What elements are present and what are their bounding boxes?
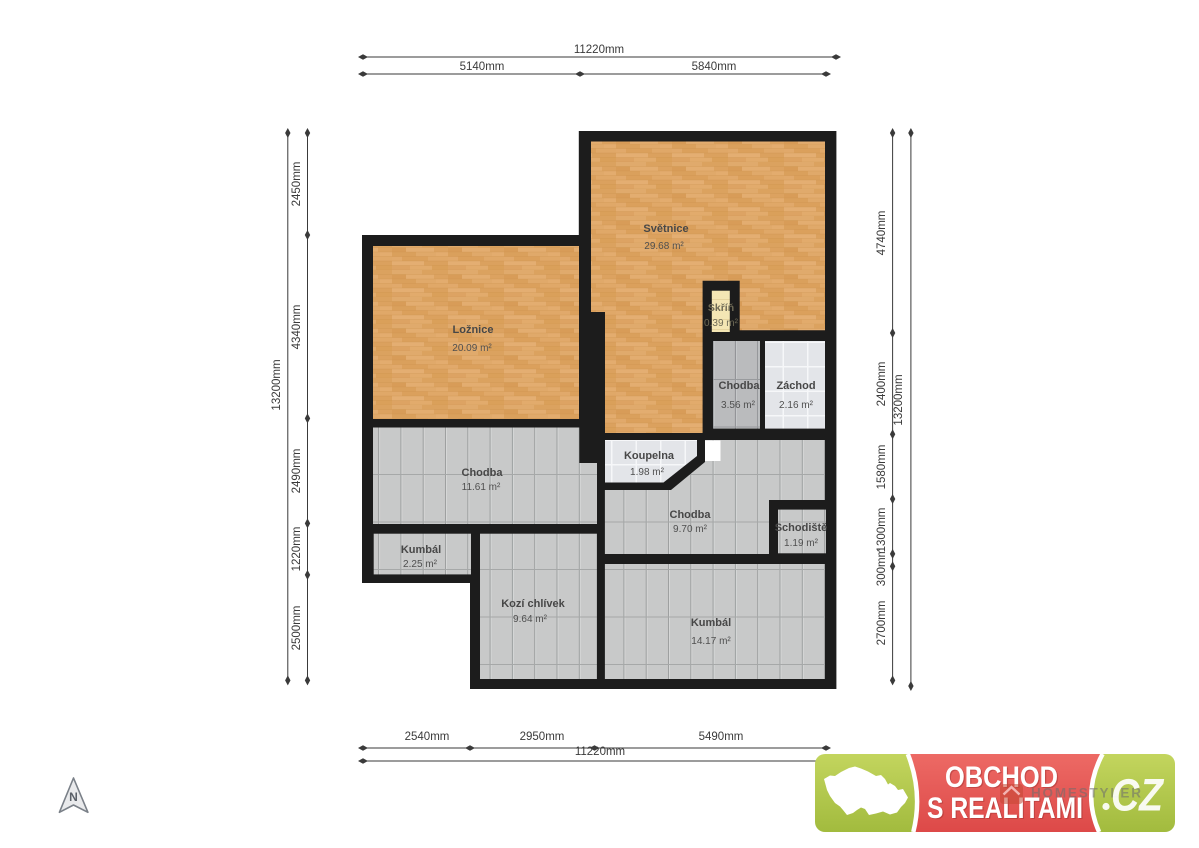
svg-text:Světnice: Světnice: [643, 223, 688, 235]
svg-text:2490mm: 2490mm: [291, 449, 303, 494]
svg-text:Kozí chlívek: Kozí chlívek: [501, 598, 565, 610]
svg-text:5840mm: 5840mm: [692, 61, 737, 73]
svg-text:Chodba: Chodba: [670, 509, 712, 521]
svg-text:29.68 m²: 29.68 m²: [644, 241, 684, 252]
svg-text:13200mm: 13200mm: [271, 359, 283, 410]
svg-text:Chodba: Chodba: [462, 467, 504, 479]
svg-text:2.25 m²: 2.25 m²: [403, 559, 438, 570]
svg-text:Koupelna: Koupelna: [624, 450, 675, 462]
svg-text:1.19 m²: 1.19 m²: [784, 538, 819, 549]
svg-text:2540mm: 2540mm: [405, 731, 450, 743]
svg-text:9.64 m²: 9.64 m²: [513, 614, 548, 625]
svg-text:1220mm: 1220mm: [291, 527, 303, 572]
svg-text:5140mm: 5140mm: [460, 61, 505, 73]
svg-text:300mm: 300mm: [876, 548, 888, 586]
svg-text:13200mm: 13200mm: [893, 374, 905, 425]
svg-text:5490mm: 5490mm: [699, 731, 744, 743]
svg-text:20.09 m²: 20.09 m²: [452, 343, 492, 354]
svg-text:Kumbál: Kumbál: [691, 617, 731, 629]
svg-text:1.98 m²: 1.98 m²: [630, 467, 665, 478]
svg-text:Kumbál: Kumbál: [401, 544, 441, 556]
svg-text:4340mm: 4340mm: [291, 305, 303, 350]
svg-text:CZ: CZ: [1111, 770, 1164, 821]
svg-text:Schodiště: Schodiště: [775, 522, 828, 534]
svg-text:1300mm: 1300mm: [876, 508, 888, 553]
svg-text:4740mm: 4740mm: [876, 211, 888, 256]
svg-text:0.39 m²: 0.39 m²: [704, 318, 739, 329]
svg-text:Ložnice: Ložnice: [453, 324, 494, 336]
svg-text:2.16 m²: 2.16 m²: [779, 400, 814, 411]
svg-text:1580mm: 1580mm: [876, 445, 888, 490]
svg-text:Chodba: Chodba: [719, 380, 761, 392]
svg-text:2500mm: 2500mm: [291, 606, 303, 651]
svg-text:Skříň: Skříň: [708, 302, 734, 314]
svg-text:9.70 m²: 9.70 m²: [673, 524, 708, 535]
svg-text:2700mm: 2700mm: [876, 601, 888, 646]
svg-text:N: N: [69, 790, 78, 804]
svg-text:Záchod: Záchod: [776, 380, 815, 392]
svg-text:2400mm: 2400mm: [876, 362, 888, 407]
svg-text:2950mm: 2950mm: [520, 731, 565, 743]
svg-text:3.56 m²: 3.56 m²: [721, 400, 756, 411]
svg-text:11220mm: 11220mm: [574, 44, 624, 56]
svg-text:14.17 m²: 14.17 m²: [691, 636, 731, 647]
svg-text:11.61 m²: 11.61 m²: [462, 482, 501, 493]
svg-text:11220mm: 11220mm: [575, 746, 625, 758]
svg-text:2450mm: 2450mm: [291, 162, 303, 207]
